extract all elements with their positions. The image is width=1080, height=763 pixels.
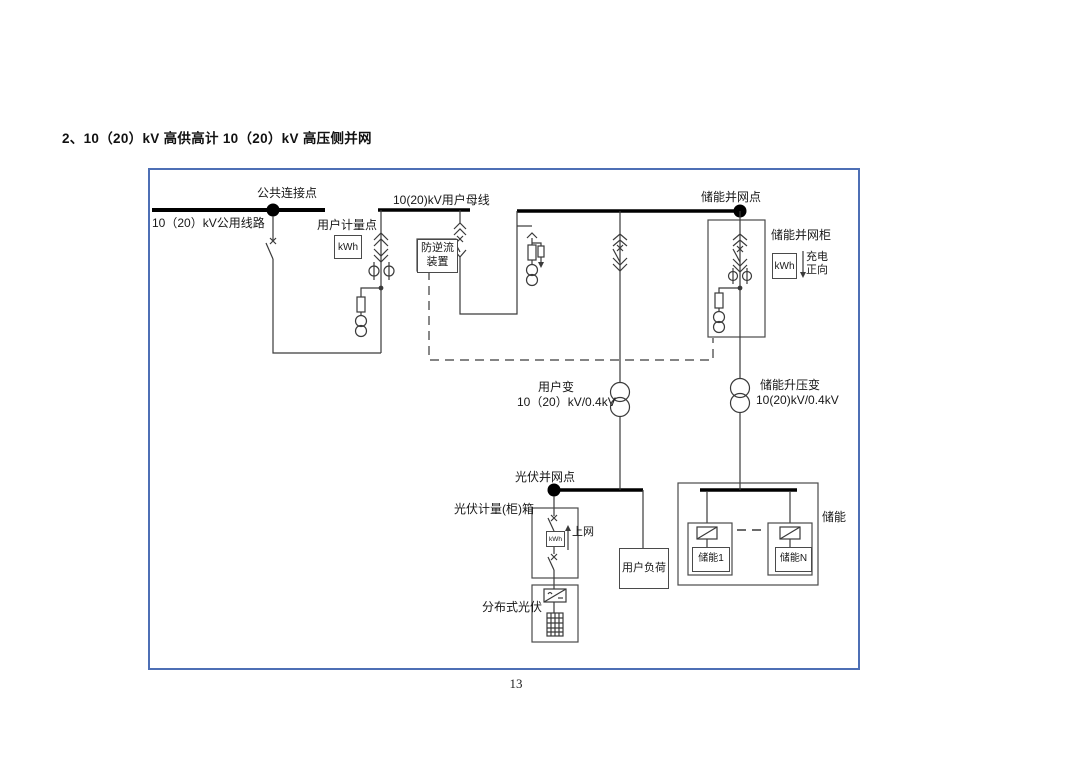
pv-meter-kwh-box: kWh bbox=[546, 531, 565, 547]
anti-backflow-text-1: 防逆流 bbox=[421, 242, 454, 256]
label-public-connection-point: 公共连接点 bbox=[257, 187, 317, 201]
label-storage-transformer-ratio: 10(20)kV/0.4kV bbox=[756, 394, 839, 408]
user-busbar-line bbox=[378, 210, 742, 211]
label-charge-dir-1: 充电 bbox=[806, 251, 828, 264]
busbar-tie-switch bbox=[453, 210, 517, 314]
label-pv-poc: 光伏并网点 bbox=[515, 471, 575, 485]
label-storage-transformer: 储能升压变 bbox=[760, 379, 820, 393]
label-charge-dir-2: 正向 bbox=[806, 264, 828, 277]
anti-backflow-text-2: 装置 bbox=[427, 256, 449, 270]
user-transformer-feeder bbox=[613, 211, 627, 382]
user-busbar-pt-branch bbox=[517, 226, 544, 286]
document-page: 2、10（20）kV 高供高计 10（20）kV 高压侧并网 bbox=[0, 0, 1080, 763]
storage-unit-n-box: 储能N bbox=[775, 547, 812, 572]
label-user-busbar: 10(20)kV用户母线 bbox=[393, 194, 490, 208]
storage-unit-1-box: 储能1 bbox=[692, 547, 730, 572]
label-pv-metering-box: 光伏计量(柜)箱 bbox=[454, 503, 534, 517]
label-storage-cabinet: 储能并网柜 bbox=[771, 229, 831, 243]
label-user-transformer: 用户变 bbox=[538, 381, 574, 395]
label-user-transformer-ratio: 10（20）kV/0.4kV bbox=[517, 396, 616, 410]
storage-meter-kwh-box: kWh bbox=[772, 253, 797, 279]
label-public-line: 10（20）kV公用线路 bbox=[152, 217, 265, 231]
user-meter-kwh-box: kWh bbox=[334, 235, 362, 259]
label-distributed-pv: 分布式光伏 bbox=[482, 601, 542, 615]
label-user-metering-point: 用户计量点 bbox=[317, 219, 377, 233]
storage-transformer-symbol bbox=[731, 379, 750, 491]
pcc-feeder-lines bbox=[266, 216, 381, 353]
user-load-box: 用户负荷 bbox=[619, 548, 669, 589]
label-storage-group: 储能 bbox=[822, 511, 846, 525]
label-storage-poc: 储能并网点 bbox=[701, 191, 761, 205]
anti-backflow-dashed-line bbox=[429, 271, 713, 360]
label-to-grid: 上网 bbox=[572, 526, 594, 539]
storage-cabinet-feeder bbox=[714, 211, 752, 378]
page-number: 13 bbox=[496, 676, 536, 692]
to-grid-arrow bbox=[565, 525, 571, 550]
anti-backflow-device-box: 防逆流 装置 bbox=[417, 239, 458, 273]
